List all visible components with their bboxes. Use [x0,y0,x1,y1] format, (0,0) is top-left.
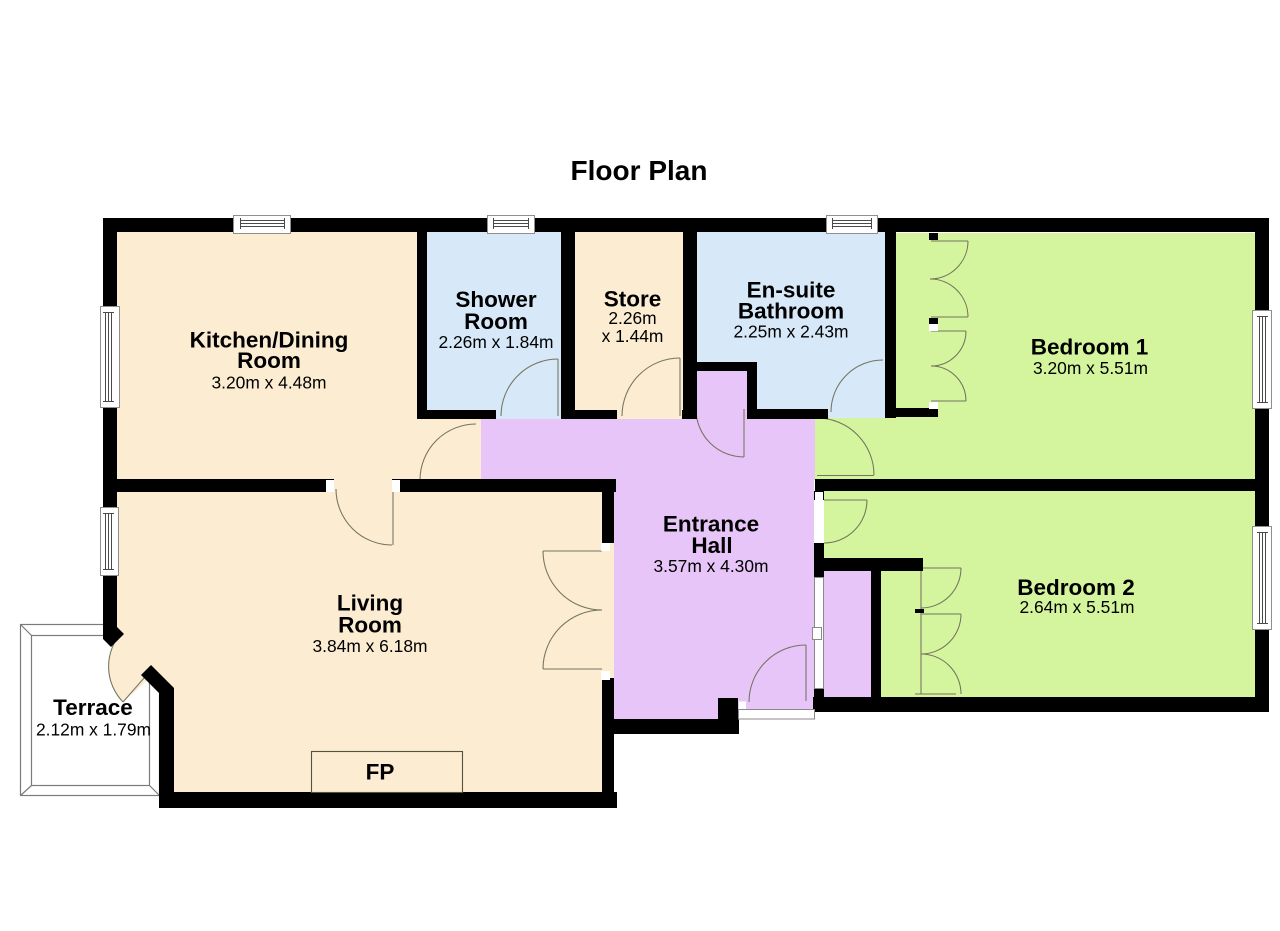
svg-text:3.84m x 6.18m: 3.84m x 6.18m [312,636,427,656]
svg-text:3.20m x 4.48m: 3.20m x 4.48m [211,373,326,393]
svg-text:Room: Room [464,309,528,334]
svg-text:Terrace: Terrace [53,695,133,720]
svg-text:2.26m: 2.26m [608,308,656,328]
svg-text:Room: Room [338,613,402,638]
svg-text:2.64m x 5.51m: 2.64m x 5.51m [1019,597,1134,617]
svg-text:3.57m x 4.30m: 3.57m x 4.30m [653,556,768,576]
svg-text:FP: FP [366,759,395,784]
svg-text:Floor Plan: Floor Plan [571,155,708,186]
svg-text:Hall: Hall [691,533,732,558]
svg-text:Room: Room [237,348,301,373]
svg-text:2.25m x 2.43m: 2.25m x 2.43m [733,322,848,342]
svg-text:Bathroom: Bathroom [738,299,844,324]
svg-text:2.26m x 1.84m: 2.26m x 1.84m [438,332,553,352]
svg-text:2.12m x 1.79m: 2.12m x 1.79m [36,720,151,740]
svg-text:Bedroom 1: Bedroom 1 [1031,335,1149,360]
svg-text:3.20m x 5.51m: 3.20m x 5.51m [1033,358,1148,378]
svg-text:x 1.44m: x 1.44m [602,326,664,346]
